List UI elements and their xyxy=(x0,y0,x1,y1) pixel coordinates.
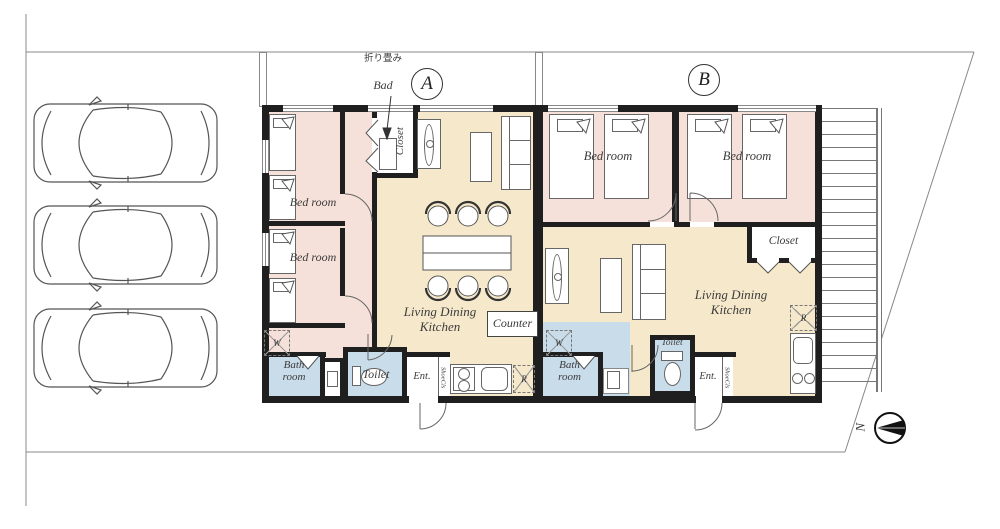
unit-b-bedroom2-label: Bed room xyxy=(714,149,780,163)
unit-b-shoe-closet-label: ShoeCls xyxy=(723,361,730,395)
unit-a-shoe-closet-label: ShoeCls xyxy=(439,361,446,395)
unit-a-bedroom1-label: Bed room xyxy=(280,196,346,209)
folding-bed-note-en: Bad xyxy=(348,79,418,92)
bed-fold-marks xyxy=(282,117,783,293)
unit-b-living-label: Living DiningKitchen xyxy=(676,288,786,317)
folding-bed-note-jp: 折り畳み xyxy=(348,54,418,65)
unit-a-closet-label: Closet xyxy=(394,121,406,161)
unit-a-bedroom2-label: Bed room xyxy=(280,251,346,264)
unit-b-toilet-label: Toilet xyxy=(652,338,692,349)
unit-b-badge: B xyxy=(688,64,720,96)
north-compass-icon xyxy=(875,413,905,443)
unit-b-entrance-label: Ent. xyxy=(694,371,722,383)
compass-north-label: N xyxy=(854,419,869,435)
counter-label-box: Counter xyxy=(487,311,538,337)
dining-set xyxy=(423,202,511,300)
unit-a-living-label: Living DiningKitchen xyxy=(385,305,495,334)
annotation-arrow xyxy=(383,96,391,139)
unit-b-closet-label: Closet xyxy=(752,235,815,248)
floor-plan-canvas: W R W R xyxy=(0,0,1000,529)
symbols-layer xyxy=(0,0,1000,529)
unit-a-bath-label: Bathroom xyxy=(269,359,319,384)
unit-a-entrance-label: Ent. xyxy=(407,371,437,383)
unit-b-bath-label: Bathroom xyxy=(543,359,596,384)
unit-a-toilet-label: Toilet xyxy=(350,368,402,381)
unit-b-bedroom1-label: Bed room xyxy=(575,149,641,163)
